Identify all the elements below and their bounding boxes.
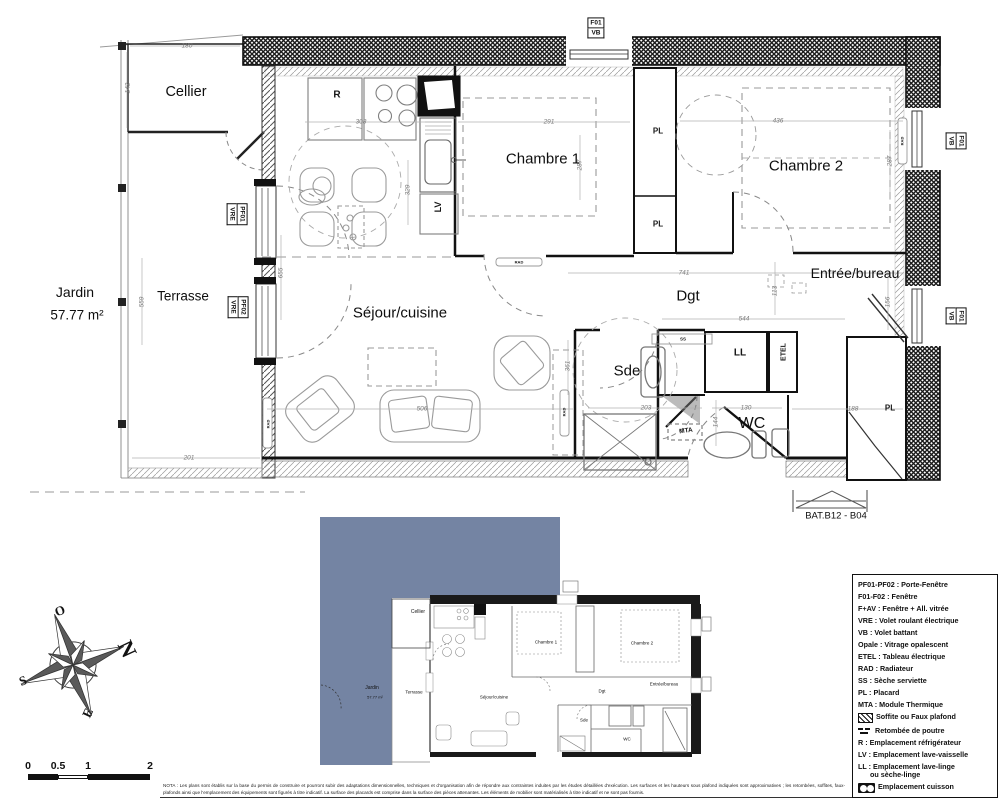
dimension-sejour_w: 506 [417,406,428,413]
legend-item-text: VB : Volet battant [858,629,917,637]
compass-rose-icon [10,595,140,745]
legend-item: RAD : Radiateur [858,665,993,673]
fixture-label-closet-3: PL [885,404,895,413]
legend-item-text: R : Emplacement réfrigérateur [858,739,961,747]
legend-item-text: RAD : Radiateur [858,665,913,673]
doors [277,186,908,479]
mini-label-sde: Sde [580,718,588,723]
legend-item: R : Emplacement réfrigérateur [858,739,993,747]
soffite-icon [858,713,873,723]
legend-item: Emplacement cuisson [858,783,993,793]
floor-plan-sheet: O N S E 0 0.5 1 2 Cellier Jardin 57.77 m… [0,0,1000,800]
area-label-jardin-m2: 57.77 m² [50,308,103,323]
scale-label-0: 0 [25,760,31,772]
dimension-sejour_h: 655 [278,268,285,279]
dimension-ch2_w: 436 [773,118,784,125]
bottom-walls [128,458,906,478]
scale-label-2: 2 [147,760,153,772]
window-tag-line: PF02 [238,296,249,318]
mini-label-wc: WC [623,737,631,742]
dimension-ch2_h: 287 [887,156,894,167]
dimension-rad_zone_h: 361 [565,361,572,372]
legend-item-text: Opale : Vitrage opalescent [858,641,948,649]
dimension-terrasse_w: 201 [184,455,195,462]
dimension-cellier_h: 142 [125,83,132,94]
mini-label-chambre2: Chambre 2 [631,641,653,646]
legend-item-text: Emplacement cuisson [878,783,954,791]
room-label-wc: WC [739,415,766,433]
dimension-lines [127,46,903,458]
fixture-label-radiator-4: RAD [900,137,905,146]
fixture-label-closet-1: PL [653,127,663,136]
dimension-kitchen_w: 308 [356,119,367,126]
window-tag-line: F01 [956,132,967,149]
legend-item: PL : Placard [858,689,993,697]
legend-item-text: Retombée de poutre [875,727,945,735]
dimension-cellier_w: 180 [182,43,193,50]
legend-item-text: F+AV : Fenêtre + All. vitrée [858,605,949,613]
dimension-wc_w: 130 [741,405,752,412]
legend-item-text: PF01-PF02 : Porte-Fenêtre [858,581,948,589]
legend-item-text: Soffite ou Faux plafond [876,713,956,721]
window-tag-line: PF01 [237,203,248,225]
legend-box: PF01-PF02 : Porte-FenêtreF01-F02 : Fenêt… [852,574,998,798]
dimension-entree_h: 156 [885,297,892,308]
legend-item: ETEL : Tableau électrique [858,653,993,661]
fixture-label-radiator-2: RAD [266,420,271,429]
mini-label-entree: Entrée/bureau [650,682,679,687]
dimension-ch1_h: 287 [577,160,584,171]
legend-item: LV : Emplacement lave-vaisselle [858,751,993,759]
room-label-sejour: Séjour/cuisine [353,305,447,322]
mini-label-sejour: Séjour/cuisine [480,695,508,700]
fence-posts [118,42,126,428]
legend-item-text: LV : Emplacement lave-vaisselle [858,751,968,759]
legend-item-text: LL : Emplacement lave-linge ou sèche-lin… [858,763,955,780]
dimension-kitchen_h: 329 [405,185,412,196]
mini-jardin-area [320,517,560,765]
mini-label-dgt: Dgt [598,689,605,694]
legend-item-text: F01-F02 : Fenêtre [858,593,918,601]
dimension-sde_w: 203 [641,405,652,412]
legend-item: Soffite ou Faux plafond [858,713,993,723]
window-tag-line: F01 [587,17,604,28]
fixture-label-closet-2: PL [653,220,663,229]
fixture-label-radiator-3: RAD [562,408,567,417]
legend-item: F+AV : Fenêtre + All. vitrée [858,605,993,613]
fixture-label-elec-panel: ETEL [781,343,788,361]
area-label-jardin: Jardin [56,284,94,300]
dimension-dgt_h: 113 [772,286,779,296]
window-tag-line: VB [945,132,955,149]
dimension-wc_h: 144 [713,417,720,428]
room-label-cellier: Cellier [165,84,206,100]
dimension-pl_w: 188 [848,406,859,413]
apartment-ref-label: BAT.B12 - B04 [805,511,867,522]
fixture-label-dishwasher: LV [433,202,443,213]
mini-building [392,581,711,765]
room-label-entree: Entrée/bureau [811,265,900,281]
scale-label-1: 1 [85,760,91,772]
fixture-label-fridge: R [333,90,340,101]
legend-item: Opale : Vitrage opalescent [858,641,993,649]
mini-label-chambre1: Chambre 1 [535,640,557,645]
room-label-chambre2: Chambre 2 [769,158,843,175]
dimension-dgt_w: 741 [679,270,690,277]
legend-item: Retombée de poutre [858,727,993,735]
scale-label-05: 0.5 [51,760,66,772]
legend-item-text: SS : Sèche serviette [858,677,927,685]
window-tag-line: VB [945,307,955,324]
legend-item: VB : Volet battant [858,629,993,637]
bottom-rule [160,797,852,798]
mini-label-terrasse: Terrasse [405,690,422,695]
window-tag-pf02-left: PF02VRE [227,296,248,318]
mini-label-jardin: Jardin [365,685,379,691]
outer-walls [243,35,942,480]
dimension-hall_w: 544 [739,316,750,323]
mini-label-jardin_area: 57.77 m² [367,695,383,700]
room-label-chambre1: Chambre 1 [506,151,580,168]
window-tag-f01-right2: F01VB [945,307,966,324]
legend-item: PF01-PF02 : Porte-Fenêtre [858,581,993,589]
legend-item-text: MTA : Module Thermique [858,701,943,709]
legend-item-text: VRE : Volet roulant électrique [858,617,959,625]
room-label-terrasse: Terrasse [157,289,209,304]
dimension-ch1_w: 291 [544,119,555,126]
legend-item-text: ETEL : Tableau électrique [858,653,945,661]
window-tag-line: VB [587,29,604,39]
window-tag-pf01-left: PF01VRE [226,203,247,225]
window-tag-line: VRE [227,296,237,318]
legend-item-text: PL : Placard [858,689,899,697]
nota-disclaimer: NOTA : Les plans sont établis sur la bas… [163,782,845,796]
window-tag-line: F01 [956,307,967,324]
entrance-marker [793,490,867,512]
room-label-sde: Sde [614,363,641,380]
mini-site-plan [320,515,712,770]
window-tag-f01-right1: F01VB [945,132,966,149]
mini-label-cellier: Cellier [411,609,425,615]
beam-icon [858,727,872,735]
fixture-label-washer: LL [734,348,746,359]
room-label-dgt: Dgt [676,288,699,305]
legend-item: SS : Sèche serviette [858,677,993,685]
window-tag-line: VRE [226,203,236,225]
legend-item: LL : Emplacement lave-linge ou sèche-lin… [858,763,993,780]
legend-item: MTA : Module Thermique [858,701,993,709]
legend-item: F01-F02 : Fenêtre [858,593,993,601]
cuisson-icon [858,783,875,793]
fixture-label-towel-dryer: SS [680,337,686,342]
dimension-terrasse_h: 559 [139,297,146,308]
legend-item: VRE : Volet roulant électrique [858,617,993,625]
fixture-label-radiator-1: RAD [515,260,524,265]
window-tag-f01-top: F01VB [587,17,604,38]
